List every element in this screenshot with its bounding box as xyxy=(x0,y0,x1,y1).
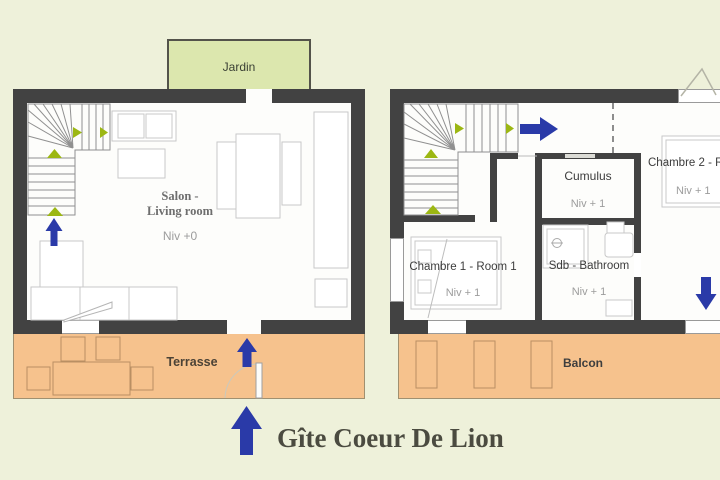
living-room-label: Salon - Living room xyxy=(115,189,245,219)
bathroom-label: Sdb - Bathroom xyxy=(538,260,640,272)
terrace-label: Terrasse xyxy=(142,355,242,369)
page-title: Gîte Coeur De Lion xyxy=(277,423,504,454)
living-room-window xyxy=(62,320,99,334)
living-room-level: Niv +0 xyxy=(115,229,245,243)
bedroom2-level: Niv + 1 xyxy=(676,185,711,197)
bedroom1-level: Niv + 1 xyxy=(398,287,528,299)
bedroom1-label: Chambre 1 - Room 1 xyxy=(398,261,528,273)
hall-wall-top xyxy=(490,153,518,159)
water-heater-level: Niv + 1 xyxy=(542,198,634,210)
balcony-label: Balcon xyxy=(535,356,631,370)
hall-wall-vertical xyxy=(490,153,497,222)
cumulus-door xyxy=(565,154,595,158)
garden-label: Jardin xyxy=(223,60,256,74)
garden-door-opening xyxy=(246,89,272,103)
bedroom1-balcony-door xyxy=(428,320,466,334)
upper-top-window xyxy=(678,89,720,103)
garden-area: Jardin xyxy=(167,39,311,92)
main-entrance-arrow-icon xyxy=(231,406,262,455)
bathroom-level: Niv + 1 xyxy=(538,286,640,298)
bedroom2-bottom-window xyxy=(685,320,720,334)
water-heater-label: Cumulus xyxy=(542,169,634,183)
bedroom2-label: Chambre 2 - R xyxy=(648,157,720,169)
terrace-door-opening xyxy=(227,320,261,334)
bedroom1-top-wall xyxy=(403,215,475,222)
cumulus-bathroom-wall xyxy=(535,218,641,225)
hall-partition-dashed xyxy=(612,103,614,153)
floor-plan-canvas: Jardin xyxy=(0,0,720,480)
